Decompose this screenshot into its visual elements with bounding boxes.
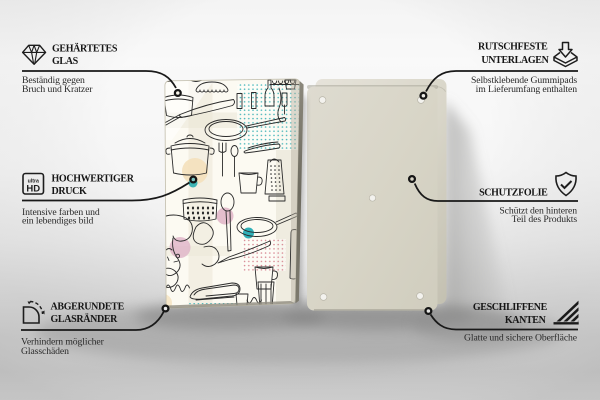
svg-text:DRUCK: DRUCK	[52, 186, 87, 197]
svg-text:GEHÄRTETES: GEHÄRTETES	[52, 41, 118, 54]
svg-text:ein lebendiges bild: ein lebendiges bild	[22, 216, 94, 227]
svg-text:Glatte und sichere Oberfläche: Glatte und sichere Oberfläche	[464, 333, 577, 344]
svg-text:RUTSCHFESTE: RUTSCHFESTE	[478, 41, 548, 52]
svg-text:KANTEN: KANTEN	[505, 315, 547, 326]
svg-text:Teil des Produkts: Teil des Produkts	[512, 214, 578, 225]
svg-text:Glasschäden: Glasschäden	[21, 346, 69, 357]
svg-text:HOCHWERTIGER: HOCHWERTIGER	[52, 173, 135, 184]
svg-text:UNTERLAGEN: UNTERLAGEN	[481, 55, 549, 66]
svg-text:ABGERUNDETE: ABGERUNDETE	[51, 301, 125, 312]
svg-text:im Lieferumfang enthalten: im Lieferumfang enthalten	[476, 84, 578, 95]
svg-text:HD: HD	[26, 184, 40, 195]
svg-text:GLAS: GLAS	[52, 56, 79, 67]
svg-text:SCHUTZFOLIE: SCHUTZFOLIE	[479, 187, 548, 198]
svg-text:Bruch und Kratzer: Bruch und Kratzer	[22, 84, 93, 95]
svg-text:GESCHLIFFENE: GESCHLIFFENE	[473, 302, 548, 313]
svg-text:GLASRÄNDER: GLASRÄNDER	[51, 312, 119, 325]
